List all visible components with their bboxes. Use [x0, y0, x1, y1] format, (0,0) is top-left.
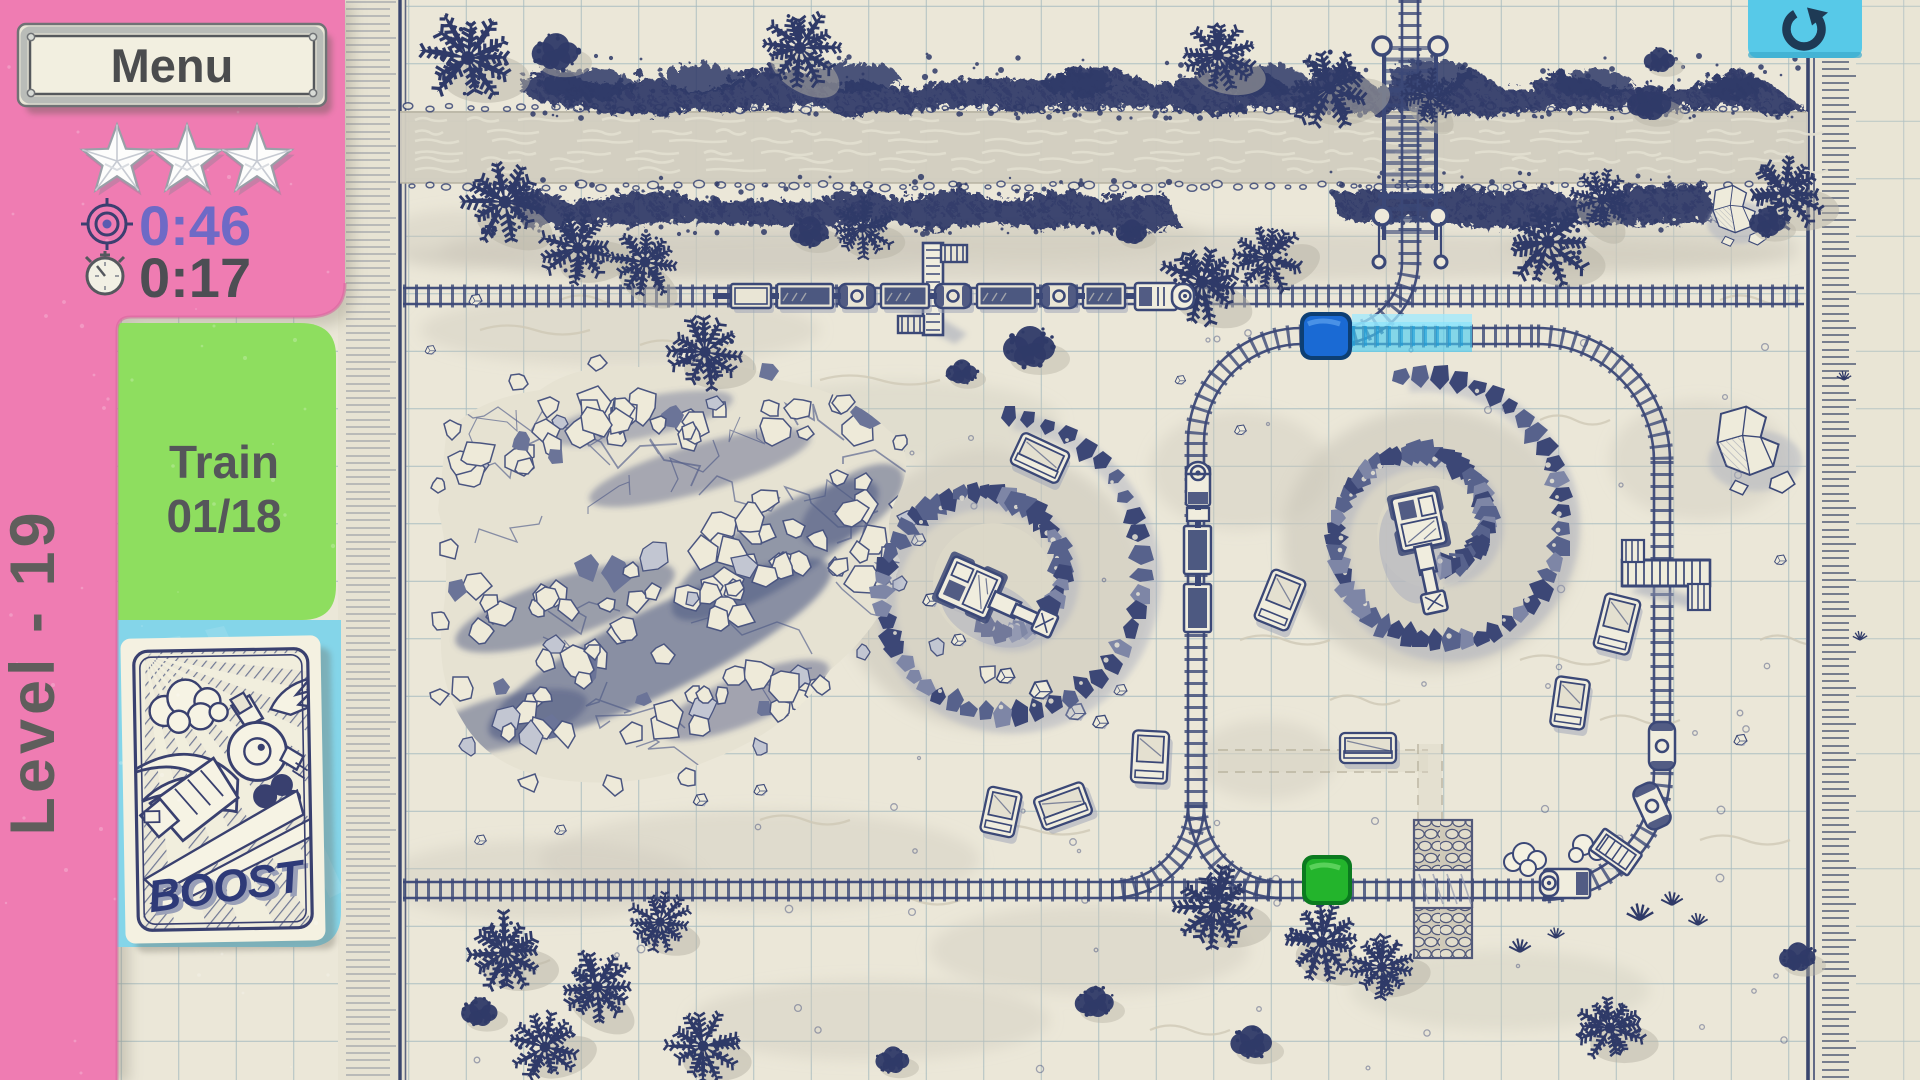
svg-text:Menu: Menu: [111, 39, 234, 92]
svg-text:0:17: 0:17: [139, 246, 251, 309]
svg-text:Train: Train: [169, 436, 279, 488]
svg-text:01/18: 01/18: [166, 490, 281, 542]
svg-text:Level - 19: Level - 19: [0, 508, 68, 835]
